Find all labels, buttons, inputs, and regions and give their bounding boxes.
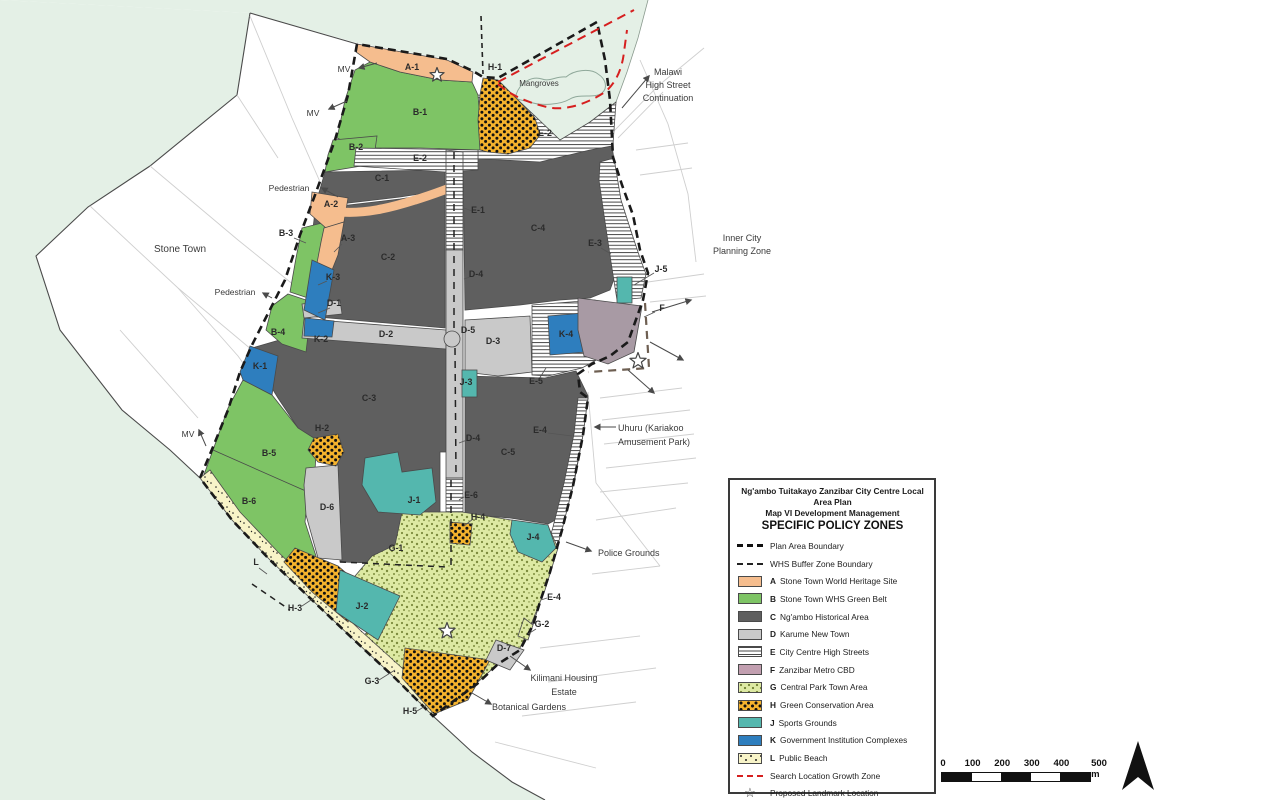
legend-swatch-F-icon (737, 664, 763, 676)
zone-label-h-3-44: H-3 (288, 603, 302, 613)
zone-D5-roundabout (444, 331, 460, 347)
zone-label-d-4-31: D-4 (466, 433, 480, 443)
zone-J5 (617, 277, 632, 303)
scale-tick-0: 0 (940, 758, 945, 769)
zone-label-h-2-29: H-2 (315, 423, 329, 433)
zone-label-b-5-33: B-5 (262, 448, 276, 458)
zone-label-j-2-43: J-2 (356, 601, 369, 611)
growth-zone-line-icon (737, 770, 763, 782)
zone-label-h-4-38: H-4 (471, 512, 485, 522)
scale-segment-1 (972, 773, 1002, 781)
zone-label-d-6-37: D-6 (320, 502, 334, 512)
legend-swatch-A-icon (737, 575, 763, 587)
zone-H4 (450, 522, 472, 545)
zone-label-k-1-25: K-1 (253, 361, 267, 371)
annotation-kilimani-housing-estate: Kilimani HousingEstate (530, 673, 597, 697)
legend-item-label: AStone Town World Heritage Site (770, 576, 897, 586)
legend-swatch-D-icon (737, 628, 763, 640)
annotation-mv-2: MV (307, 108, 320, 118)
zone-label-a-1-0: A-1 (405, 62, 419, 72)
legend-item-label: BStone Town WHS Green Belt (770, 594, 887, 604)
legend-item-label: ECity Centre High Streets (770, 647, 869, 657)
legend-item-label: HGreen Conservation Area (770, 700, 874, 710)
zone-label-e-5-26: E-5 (529, 376, 543, 386)
legend-item-K: KGovernment Institution Complexes (737, 732, 928, 750)
legend-item-D: DKarume New Town (737, 625, 928, 643)
legend-item-F: FZanzibar Metro CBD (737, 661, 928, 679)
zone-label-c-4-9: C-4 (531, 223, 545, 233)
legend-title-line1: Ng'ambo Tuitakayo Zanzibar City Centre L… (737, 486, 928, 508)
legend-item-H: HGreen Conservation Area (737, 696, 928, 714)
legend: Ng'ambo Tuitakayo Zanzibar City Centre L… (728, 478, 936, 794)
cbd-arrow-3 (628, 370, 654, 393)
legend-swatch-L-icon (737, 752, 763, 764)
zone-label-f-18: F (659, 303, 665, 313)
botanical-arrow (472, 693, 491, 704)
scale-tick-4: 400 (1053, 758, 1069, 769)
zone-label-d-1-17: D-1 (327, 298, 341, 308)
legend-item-label: LPublic Beach (770, 753, 828, 763)
annotation-malawi-high-street: MalawiHigh StreetContinuation (643, 67, 694, 103)
legend-item-J: JSports Grounds (737, 714, 928, 732)
scale-segment-0 (942, 773, 972, 781)
buffer-boundary-line-icon (737, 558, 763, 570)
zone-label-j-1-35: J-1 (408, 495, 421, 505)
legend-swatch-H-icon (737, 699, 763, 711)
zone-label-a-3-11: A-3 (341, 233, 355, 243)
legend-swatch-B-icon (737, 593, 763, 605)
annotation-pedestrian-2: Pedestrian (215, 287, 256, 297)
zone-label-b-6-36: B-6 (242, 496, 256, 506)
zone-label-d-7-46: D-7 (497, 643, 511, 653)
annotation-uhuru-kariakoo: Uhuru (KariakooAmusement Park) (618, 423, 690, 447)
zone-label-b-4-20: B-4 (271, 327, 285, 337)
zone-label-e-3-12: E-3 (588, 238, 602, 248)
legend-title-line2: Map VI Development Management (737, 508, 928, 519)
annotation-stone-town: Stone Town (154, 244, 206, 255)
zone-label-g-2-45: G-2 (535, 619, 550, 629)
legend-item-C: CNg'ambo Historical Area (737, 608, 928, 626)
scale-bar-ticks: 0100200300400500 m (941, 758, 1106, 770)
zone-label-d-3-24: D-3 (486, 336, 500, 346)
zone-label-k-2-23: K-2 (314, 334, 328, 344)
cbd-arrow-2 (650, 342, 683, 360)
annotation-police-grounds: Police Grounds (598, 548, 660, 558)
zone-label-c-1-6: C-1 (375, 173, 389, 183)
annotation-mv-1: MV (338, 64, 351, 74)
zone-label-d-5-19: D-5 (461, 325, 475, 335)
zone-label-e-4-30: E-4 (533, 425, 547, 435)
scale-bar-segments (941, 772, 1091, 782)
landmark-star-icon: ☆ (737, 787, 763, 799)
legend-item-star: ☆Proposed Landmark Location (737, 785, 928, 800)
legend-swatch-K-icon (737, 734, 763, 746)
legend-swatch-J-icon (737, 717, 763, 729)
zone-label-d-4-15: D-4 (469, 269, 483, 279)
annotation-inner-city-planning-zone: Inner CityPlanning Zone (713, 233, 771, 256)
scale-bar: 0100200300400500 m (941, 758, 1106, 788)
legend-item-dash-red: Search Location Growth Zone (737, 767, 928, 785)
zone-label-e-6-34: E-6 (464, 490, 478, 500)
legend-item-dash-bold: Plan Area Boundary (737, 537, 928, 555)
legend-item-L: LPublic Beach (737, 749, 928, 767)
legend-items: Plan Area BoundaryWHS Buffer Zone Bounda… (737, 537, 928, 800)
zone-label-j-4-39: J-4 (527, 532, 540, 542)
annotation-mv-3: MV (182, 429, 195, 439)
zone-label-c-3-28: C-3 (362, 393, 376, 403)
plan-boundary-line-icon (737, 540, 763, 552)
zone-label-d-2-21: D-2 (379, 329, 393, 339)
zone-label-e-4-42: E-4 (547, 592, 561, 602)
zone-label-a-2-7: A-2 (324, 199, 338, 209)
annotation-mangroves: Mangroves (519, 79, 559, 88)
legend-item-A: AStone Town World Heritage Site (737, 572, 928, 590)
zone-label-j-3-27: J-3 (460, 377, 473, 387)
zone-label-c-5-32: C-5 (501, 447, 515, 457)
scale-tick-3: 300 (1024, 758, 1040, 769)
legend-item-label: WHS Buffer Zone Boundary (770, 559, 873, 569)
zone-label-l-41: L (253, 557, 259, 567)
cbd-arrow-1 (652, 300, 691, 312)
zone-label-b-2-4: B-2 (349, 142, 363, 152)
mv-arrow-3 (199, 430, 206, 446)
legend-item-label: GCentral Park Town Area (770, 682, 867, 692)
scale-tick-5: 500 m (1091, 758, 1107, 780)
legend-item-label: Plan Area Boundary (770, 541, 844, 551)
zone-label-k-4-22: K-4 (559, 329, 573, 339)
legend-swatch-E-icon (737, 646, 763, 658)
legend-item-E: ECity Centre High Streets (737, 643, 928, 661)
legend-item-label: KGovernment Institution Complexes (770, 735, 907, 745)
legend-item-label: DKarume New Town (770, 629, 849, 639)
zone-label-j-5-14: J-5 (655, 264, 668, 274)
legend-item-label: JSports Grounds (770, 718, 837, 728)
legend-item-label: Search Location Growth Zone (770, 771, 880, 781)
zone-label-e-2-5: E-2 (413, 153, 427, 163)
zone-label-h-5-48: H-5 (403, 706, 417, 716)
legend-swatch-C-icon (737, 611, 763, 623)
zone-label-e-1-8: E-1 (471, 205, 485, 215)
pedestrian-arrow-2 (263, 293, 272, 298)
map-page: A-1H-1B-1E-2B-2E-2C-1A-2E-1C-4B-3A-3E-3C… (0, 0, 1280, 800)
zone-label-g-1-40: G-1 (389, 543, 404, 553)
annotation-pedestrian-1: Pedestrian (269, 183, 310, 193)
zone-label-g-3-47: G-3 (365, 676, 380, 686)
legend-swatch-G-icon (737, 681, 763, 693)
annotation-botanical-gardens: Botanical Gardens (492, 702, 567, 712)
zone-label-b-3-10: B-3 (279, 228, 293, 238)
scale-segment-4 (1060, 773, 1090, 781)
scale-segment-2 (1001, 773, 1031, 781)
legend-item-dash-thin: WHS Buffer Zone Boundary (737, 555, 928, 573)
zone-label-b-1-2: B-1 (413, 107, 427, 117)
landmark-star-3-icon (630, 353, 646, 368)
legend-title-line3: SPECIFIC POLICY ZONES (737, 519, 928, 534)
legend-item-G: GCentral Park Town Area (737, 679, 928, 697)
legend-item-B: BStone Town WHS Green Belt (737, 590, 928, 608)
legend-item-label: Proposed Landmark Location (770, 788, 878, 798)
zone-label-c-2-13: C-2 (381, 252, 395, 262)
legend-item-label: FZanzibar Metro CBD (770, 665, 855, 675)
police-arrow (566, 542, 591, 551)
zone-label-e-2-3: E-2 (538, 128, 552, 138)
zone-label-h-1-1: H-1 (488, 62, 502, 72)
zoning-map: A-1H-1B-1E-2B-2E-2C-1A-2E-1C-4B-3A-3E-3C… (0, 0, 1280, 800)
zone-label-k-3-16: K-3 (326, 272, 340, 282)
scale-tick-2: 200 (994, 758, 1010, 769)
north-arrow-icon (1118, 738, 1158, 793)
scale-segment-3 (1031, 773, 1061, 781)
scale-tick-1: 100 (965, 758, 981, 769)
legend-item-label: CNg'ambo Historical Area (770, 612, 869, 622)
